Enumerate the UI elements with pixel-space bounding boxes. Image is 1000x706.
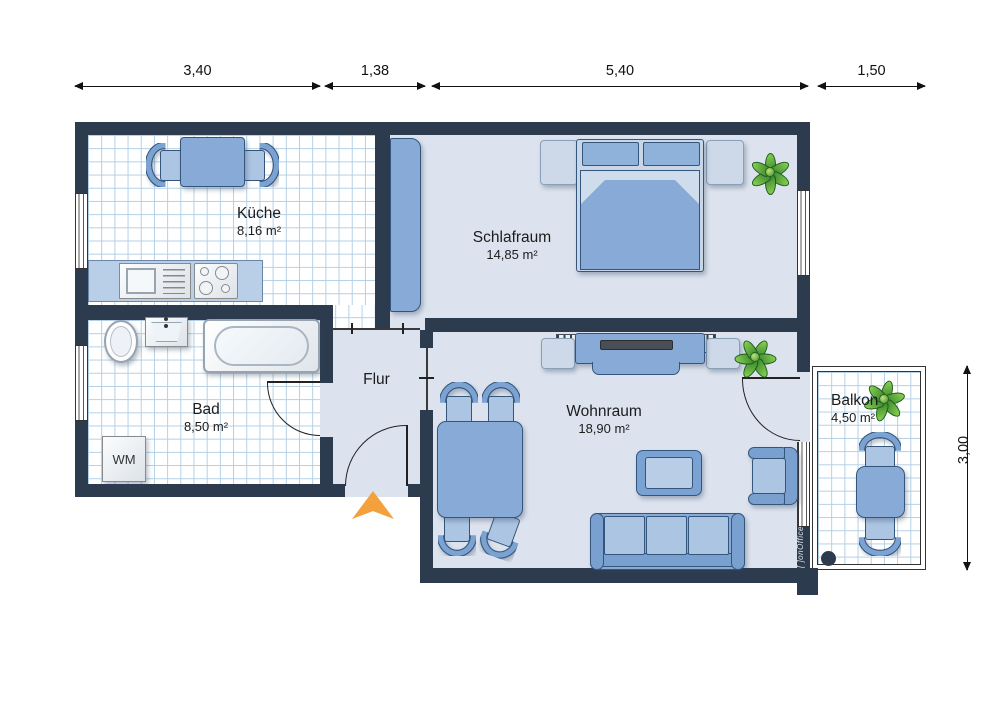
- opening-tick-right: [419, 377, 434, 379]
- sofa-arm-right: [731, 513, 745, 570]
- armchair: [748, 447, 798, 505]
- opening-tick-kitchen: [351, 323, 353, 334]
- opening-bath-door: [320, 383, 333, 437]
- kitchen-sink-basin: [126, 268, 156, 294]
- watermark-text: onOffice: [796, 526, 805, 560]
- dimension-line-4: [818, 86, 925, 87]
- dimension-label-4: 1,50: [818, 63, 925, 79]
- armchair-backrest: [784, 447, 798, 505]
- kitchen-table: [180, 137, 245, 187]
- tv-sideboard-front: [592, 362, 680, 375]
- dimension-line-2: [325, 86, 425, 87]
- sofa-cushion-1: [604, 516, 645, 555]
- wall-bottom-bath: [75, 484, 345, 497]
- sofa-arm-left: [590, 513, 604, 570]
- washing-machine-label: WM: [112, 452, 135, 467]
- pillow-left: [582, 142, 639, 166]
- dining-table: [437, 421, 523, 518]
- stove-burner-2: [215, 266, 229, 280]
- nightstand-left: [540, 140, 578, 185]
- room-name-bedroom: Schlafraum: [430, 228, 594, 247]
- bathroom-window: [75, 345, 88, 421]
- room-area-kitchen: 8,16 m²: [196, 223, 322, 239]
- dimension-label-right: 3,00: [956, 420, 972, 480]
- sofa-cushion-3: [688, 516, 729, 555]
- room-label-bathroom: Bad 8,50 m²: [143, 400, 269, 436]
- wall-balcony-stub: [797, 583, 818, 595]
- coffee-table-top: [645, 457, 693, 489]
- room-name-bathroom: Bad: [143, 400, 269, 419]
- wall-top: [75, 122, 810, 135]
- wall-livingroom-bottom: [420, 568, 818, 583]
- sink-tap-dot-2: [164, 324, 168, 328]
- room-label-bedroom: Schlafraum 14,85 m²: [430, 228, 594, 264]
- opening-tick-bedroom: [402, 323, 404, 334]
- dimension-line-1: [75, 86, 320, 87]
- dimension-label-2: 1,38: [325, 63, 425, 79]
- livingroom-plant: [736, 337, 774, 377]
- watermark-symbol: [ ]: [796, 560, 805, 568]
- bedroom-window: [797, 190, 810, 276]
- armchair-seat: [752, 458, 786, 494]
- room-area-bathroom: 8,50 m²: [143, 419, 269, 435]
- room-label-hallway: Flur: [334, 370, 419, 389]
- room-name-balcony: Balkon: [831, 391, 911, 410]
- sideboard-left: [541, 338, 575, 369]
- room-area-balcony: 4,50 m²: [831, 410, 911, 426]
- balcony-table: [856, 466, 905, 518]
- tv: [600, 340, 673, 350]
- sideboard-right: [706, 338, 740, 369]
- room-name-livingroom: Wohnraum: [519, 402, 689, 421]
- balcony-drain: [821, 551, 836, 566]
- wall-kitchen-bedroom: [375, 135, 390, 330]
- kitchen-window: [75, 193, 88, 269]
- kitchen-sink-drainer: [163, 269, 185, 294]
- washing-machine: WM: [102, 436, 146, 482]
- wall-bedroom-bottom: [425, 318, 810, 332]
- room-label-livingroom: Wohnraum 18,90 m²: [519, 402, 689, 438]
- stove-burner-1: [200, 267, 209, 276]
- dimension-label-1: 3,40: [75, 63, 320, 79]
- toilet-bowl: [110, 326, 132, 357]
- armchair-arm-bottom: [748, 493, 788, 505]
- sofa-backrest: [601, 553, 733, 567]
- bed-sheet-strip: [581, 171, 699, 180]
- floor-plan: 3,40 1,38 5,40 1,50 3,00: [0, 0, 1000, 706]
- bathtub-inner: [214, 326, 309, 366]
- nightstand-right: [706, 140, 744, 185]
- room-name-kitchen: Küche: [196, 204, 322, 223]
- wardrobe: [390, 138, 421, 312]
- entrance-door-leaf: [406, 425, 408, 486]
- watermark: [ ]onOffice: [796, 514, 811, 580]
- sink-tap-dot-1: [164, 317, 168, 321]
- stove-burner-3: [199, 281, 213, 295]
- threshold-hallway-top: [333, 328, 420, 330]
- room-area-bedroom: 14,85 m²: [430, 247, 594, 263]
- kitchen-floor-passage: [333, 305, 375, 330]
- dimension-line-3: [432, 86, 808, 87]
- stove-burner-4: [221, 284, 230, 293]
- bedroom-plant: [751, 152, 789, 192]
- sofa-cushion-2: [646, 516, 687, 555]
- dimension-label-3: 5,40: [432, 63, 808, 79]
- pillow-right: [643, 142, 700, 166]
- room-name-hallway: Flur: [334, 370, 419, 389]
- room-area-livingroom: 18,90 m²: [519, 421, 689, 437]
- threshold-hallway-livingroom: [426, 348, 428, 410]
- room-label-balcony: Balkon 4,50 m²: [831, 391, 911, 427]
- wall-kitchen-bath: [75, 305, 333, 320]
- room-label-kitchen: Küche 8,16 m²: [196, 204, 322, 240]
